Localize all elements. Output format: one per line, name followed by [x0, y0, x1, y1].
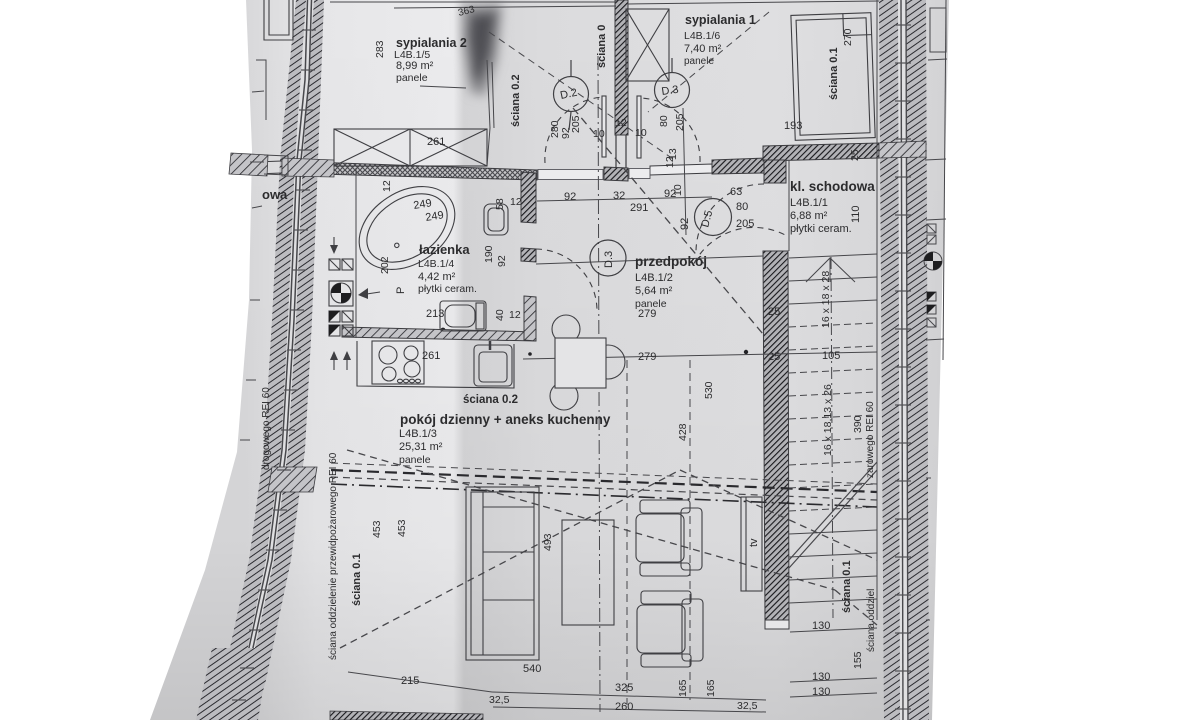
svg-text:ściana 0.1: ściana 0.1: [828, 47, 840, 100]
svg-text:428: 428: [677, 423, 689, 441]
svg-text:193: 193: [784, 120, 802, 132]
svg-text:16 x 18,13 x 26: 16 x 18,13 x 26: [822, 384, 834, 456]
svg-text:283: 283: [374, 40, 386, 58]
svg-text:10: 10: [672, 184, 684, 196]
svg-text:8,99 m²: 8,99 m²: [396, 60, 434, 72]
svg-text:tv: tv: [748, 538, 760, 547]
svg-text:ściana 0.2: ściana 0.2: [510, 74, 522, 127]
svg-text:sypialania 1: sypialania 1: [685, 13, 756, 27]
svg-text:32,5: 32,5: [489, 694, 510, 706]
svg-text:205: 205: [674, 113, 686, 131]
svg-text:58: 58: [494, 198, 506, 210]
svg-text:25: 25: [768, 306, 780, 318]
svg-text:12: 12: [615, 117, 627, 129]
svg-text:260: 260: [615, 701, 633, 713]
svg-text:płytki ceram.: płytki ceram.: [418, 283, 477, 295]
svg-text:215: 215: [401, 675, 419, 687]
svg-text:ściana oddziel: ściana oddziel: [866, 589, 877, 652]
svg-text:P: P: [395, 287, 407, 294]
svg-text:ściana 0.1: ściana 0.1: [841, 560, 853, 613]
svg-text:279: 279: [638, 308, 656, 320]
svg-text:ściana 0.2: ściana 0.2: [463, 394, 518, 406]
svg-text:5,64 m²: 5,64 m²: [635, 285, 673, 297]
svg-text:63: 63: [730, 186, 742, 198]
svg-text:493: 493: [542, 533, 554, 551]
svg-text:261: 261: [422, 350, 440, 362]
svg-text:25: 25: [849, 149, 861, 161]
svg-text:12: 12: [510, 196, 522, 208]
svg-text:pokój dzienny + aneks kuchenny: pokój dzienny + aneks kuchenny: [400, 412, 611, 427]
svg-text:540: 540: [523, 663, 541, 675]
svg-text:L4B.1/1: L4B.1/1: [790, 197, 828, 209]
svg-text:261: 261: [427, 136, 445, 148]
svg-text:110: 110: [850, 205, 862, 223]
svg-text:270: 270: [842, 28, 854, 46]
svg-text:25,31 m²: 25,31 m²: [399, 441, 443, 453]
svg-text:4,42 m²: 4,42 m²: [418, 271, 456, 283]
svg-text:213: 213: [426, 308, 444, 320]
svg-text:105: 105: [822, 350, 840, 362]
svg-text:drogowego REI 60: drogowego REI 60: [261, 387, 272, 470]
svg-text:453: 453: [371, 520, 383, 538]
svg-text:130: 130: [812, 620, 830, 632]
svg-text:10: 10: [593, 128, 605, 140]
svg-text:190: 190: [483, 245, 495, 263]
svg-text:L4B.1/6: L4B.1/6: [684, 30, 720, 42]
svg-text:L4B.1/2: L4B.1/2: [635, 272, 673, 284]
svg-text:D.3: D.3: [661, 84, 680, 98]
svg-text:płytki ceram.: płytki ceram.: [790, 223, 852, 235]
svg-text:92: 92: [564, 191, 576, 203]
svg-text:D.3: D.3: [603, 251, 615, 268]
svg-text:ściana 0.1: ściana 0.1: [351, 553, 363, 606]
svg-text:205: 205: [736, 218, 754, 230]
svg-text:panele: panele: [399, 454, 431, 466]
svg-text:16 x 18 x 28: 16 x 18 x 28: [820, 271, 832, 328]
svg-text:12: 12: [381, 180, 393, 192]
svg-text:32: 32: [613, 190, 625, 202]
svg-text:80: 80: [658, 115, 670, 127]
svg-text:92: 92: [679, 218, 691, 230]
svg-text:przedpokój: przedpokój: [635, 254, 707, 269]
svg-text:L4B.1/3: L4B.1/3: [399, 428, 437, 440]
svg-text:L4B.1/4: L4B.1/4: [418, 258, 454, 270]
svg-text:205: 205: [570, 115, 582, 133]
svg-text:ściana oddzielenie przewidpoża: ściana oddzielenie przewidpożarowego REI…: [328, 452, 339, 660]
svg-text:202: 202: [379, 256, 391, 274]
svg-text:12: 12: [509, 309, 521, 321]
svg-text:291: 291: [630, 202, 648, 214]
svg-text:kl. schodowa: kl. schodowa: [790, 179, 875, 194]
svg-text:130: 130: [812, 686, 830, 698]
svg-text:panele: panele: [684, 56, 714, 67]
svg-text:165: 165: [677, 679, 689, 697]
svg-text:zarowego REI 60: zarowego REI 60: [865, 401, 876, 478]
svg-text:7,40 m²: 7,40 m²: [684, 43, 722, 55]
svg-text:279: 279: [638, 351, 656, 363]
svg-text:łazienka: łazienka: [419, 242, 470, 257]
svg-text:32,5: 32,5: [737, 700, 758, 712]
svg-text:panele: panele: [396, 72, 428, 84]
svg-text:155: 155: [852, 651, 864, 669]
svg-text:165: 165: [705, 679, 717, 697]
svg-text:40: 40: [494, 309, 506, 321]
svg-text:owa: owa: [262, 187, 288, 202]
svg-text:10: 10: [635, 127, 647, 139]
svg-text:390: 390: [852, 415, 864, 433]
svg-text:12: 12: [664, 156, 676, 168]
svg-text:ściana 0: ściana 0: [596, 25, 608, 68]
svg-text:6,88 m²: 6,88 m²: [790, 210, 828, 222]
svg-text:80: 80: [736, 201, 748, 213]
svg-text:25: 25: [768, 351, 780, 363]
svg-text:sypialania 2: sypialania 2: [396, 36, 467, 50]
svg-text:453: 453: [396, 519, 408, 537]
svg-text:530: 530: [703, 381, 715, 399]
svg-text:325: 325: [615, 682, 633, 694]
svg-text:92: 92: [496, 255, 508, 267]
svg-text:130: 130: [812, 671, 830, 683]
